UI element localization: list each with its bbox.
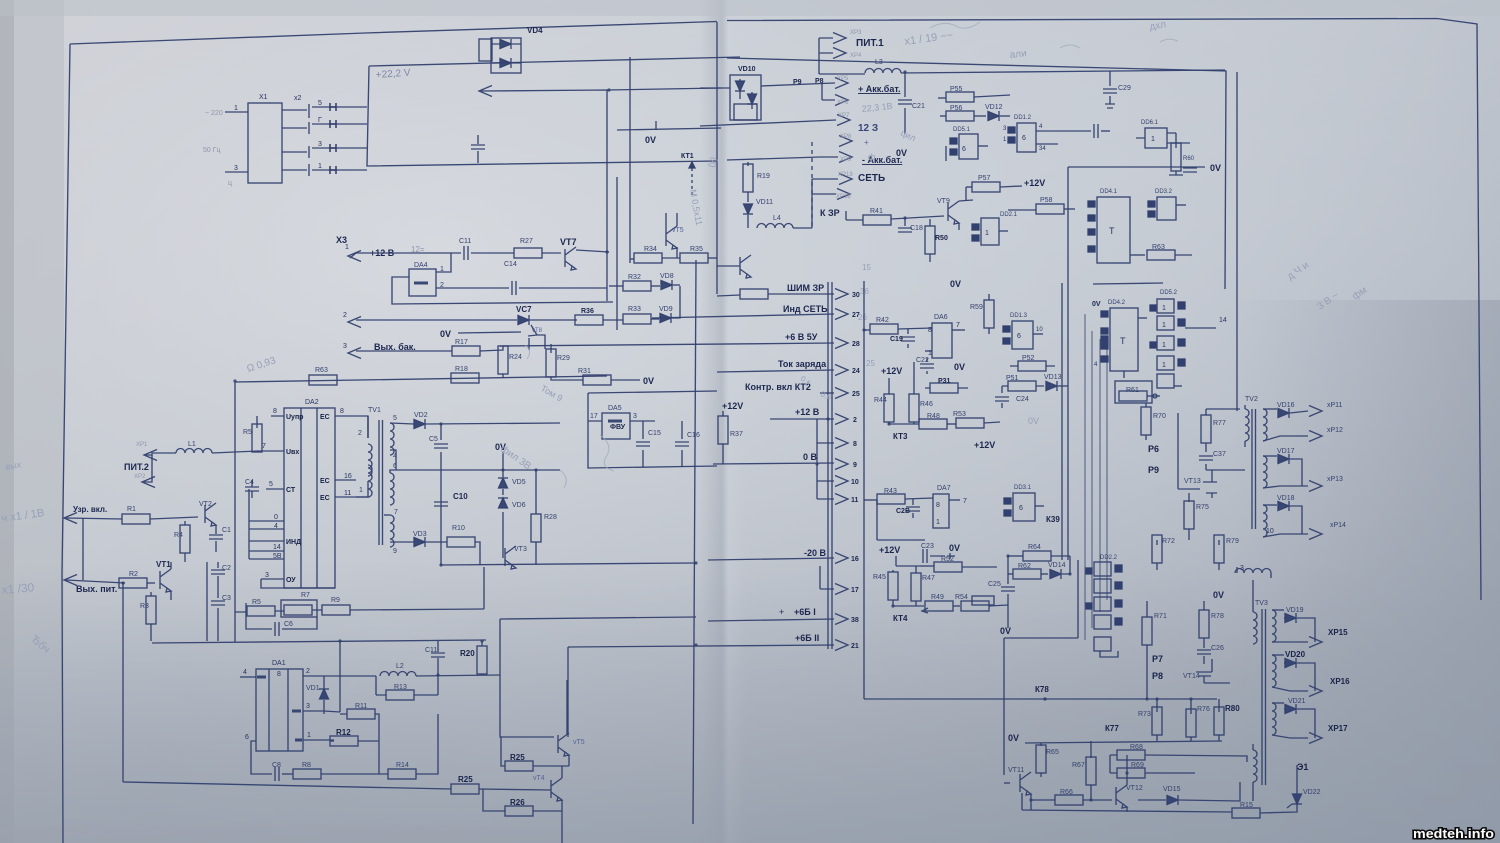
svg-text:Т: Т bbox=[1120, 336, 1126, 346]
svg-text:1: 1 bbox=[1162, 305, 1166, 312]
svg-text:хР12: хР12 bbox=[1327, 427, 1343, 434]
svg-text:R65: R65 bbox=[1046, 749, 1059, 756]
svg-text:L2: L2 bbox=[396, 663, 404, 670]
svg-text:Вых. пит.: Вых. пит. bbox=[76, 584, 117, 594]
svg-text:+12V: +12V bbox=[722, 401, 743, 411]
svg-text:R52: R52 bbox=[941, 556, 954, 563]
svg-text:R10: R10 bbox=[452, 525, 465, 532]
svg-text:R44: R44 bbox=[874, 397, 887, 404]
svg-text:ХР9: ХР9 bbox=[840, 157, 852, 163]
svg-text:ПИТ.2: ПИТ.2 bbox=[124, 462, 149, 472]
svg-text:R32: R32 bbox=[628, 274, 641, 281]
svg-text:ХР18: ХР18 bbox=[836, 194, 851, 200]
svg-text:R67: R67 bbox=[1072, 762, 1085, 769]
svg-text:0: 0 bbox=[274, 514, 278, 521]
svg-text:С2В: С2В bbox=[896, 508, 910, 515]
svg-text:КТ1: КТ1 bbox=[681, 153, 694, 160]
svg-text:ПИТ.1: ПИТ.1 bbox=[856, 38, 884, 49]
svg-text:R5: R5 bbox=[252, 599, 261, 606]
svg-text:12 З: 12 З bbox=[858, 123, 878, 134]
svg-text:6: 6 bbox=[962, 146, 966, 153]
svg-text:ХР4: ХР4 bbox=[850, 53, 862, 59]
svg-text:R47: R47 bbox=[922, 575, 935, 582]
svg-text:Р8: Р8 bbox=[1152, 671, 1163, 681]
svg-text:R18: R18 bbox=[455, 366, 468, 373]
svg-text:С29: С29 bbox=[1118, 85, 1131, 92]
svg-text:11: 11 bbox=[851, 497, 859, 504]
svg-text:Р51: Р51 bbox=[1006, 375, 1019, 382]
svg-text:VD17: VD17 bbox=[1277, 448, 1295, 455]
svg-text:R78: R78 bbox=[1211, 613, 1224, 620]
svg-text:6: 6 bbox=[1019, 505, 1023, 512]
svg-text:R73: R73 bbox=[1138, 711, 1151, 718]
svg-text:R11: R11 bbox=[355, 703, 367, 710]
svg-text:R66: R66 bbox=[1060, 789, 1073, 796]
svg-text:R2: R2 bbox=[129, 571, 138, 578]
svg-text:VD2: VD2 bbox=[414, 412, 428, 419]
svg-text:хР13: хР13 bbox=[1327, 476, 1343, 483]
svg-text:Контр. вкл КТ2: Контр. вкл КТ2 bbox=[745, 382, 811, 392]
svg-text:СТ: СТ bbox=[286, 487, 296, 494]
svg-text:VD19: VD19 bbox=[1286, 607, 1304, 614]
svg-text:0V: 0V bbox=[1213, 590, 1224, 600]
svg-text:R24: R24 bbox=[509, 354, 522, 361]
svg-text:2: 2 bbox=[853, 417, 857, 424]
svg-text:VТ1: VТ1 bbox=[156, 560, 171, 569]
svg-text:DA2: DA2 bbox=[305, 399, 319, 406]
svg-text:Uвх: Uвх bbox=[286, 449, 299, 456]
svg-text:R35: R35 bbox=[690, 246, 703, 253]
svg-text:6: 6 bbox=[1022, 135, 1026, 142]
svg-text:0V: 0V bbox=[645, 135, 656, 145]
svg-text:С11: С11 bbox=[425, 647, 437, 654]
svg-text:ХР19: ХР19 bbox=[838, 172, 853, 178]
svg-text:R3: R3 bbox=[140, 603, 149, 610]
svg-text:R26: R26 bbox=[510, 798, 525, 807]
svg-text:9: 9 bbox=[393, 548, 397, 555]
svg-text:DA4: DA4 bbox=[414, 262, 428, 269]
svg-text:ТV3: ТV3 bbox=[1255, 600, 1268, 607]
svg-text:КТ4: КТ4 bbox=[893, 614, 908, 623]
svg-text:1: 1 bbox=[985, 230, 989, 237]
svg-text:1: 1 bbox=[359, 487, 363, 494]
svg-text:VТ14: VТ14 bbox=[1183, 673, 1200, 680]
svg-text:DD4.1: DD4.1 bbox=[1100, 189, 1118, 195]
svg-text:0V: 0V bbox=[1000, 626, 1011, 636]
svg-text:С15: С15 bbox=[648, 430, 661, 437]
svg-text:R41: R41 bbox=[870, 208, 883, 215]
svg-text:R76: R76 bbox=[1197, 706, 1210, 713]
svg-text:С26: С26 bbox=[1211, 645, 1224, 652]
svg-text:R13: R13 bbox=[394, 684, 407, 691]
svg-text:Р31: Р31 bbox=[938, 378, 951, 385]
svg-text:ЕС: ЕС bbox=[320, 478, 330, 485]
svg-text:R20: R20 bbox=[460, 649, 475, 658]
svg-text:4: 4 bbox=[243, 669, 247, 676]
svg-text:VТ3: VТ3 bbox=[514, 546, 527, 553]
svg-text:5В: 5В bbox=[273, 553, 282, 560]
svg-text:17: 17 bbox=[851, 587, 859, 594]
svg-text:ц: ц bbox=[228, 180, 232, 187]
svg-text:R19: R19 bbox=[757, 173, 770, 180]
svg-text:Р9: Р9 bbox=[1148, 465, 1159, 475]
svg-text:1: 1 bbox=[1151, 136, 1155, 143]
svg-text:0V: 0V bbox=[1028, 416, 1039, 426]
svg-text:medteh.info: medteh.info bbox=[1413, 826, 1494, 841]
svg-text:VТ7: VТ7 bbox=[560, 237, 577, 247]
svg-text:VD8: VD8 bbox=[660, 273, 674, 280]
svg-text:VD5: VD5 bbox=[512, 479, 526, 486]
svg-text:VD14: VD14 bbox=[1048, 562, 1066, 569]
svg-text:2: 2 bbox=[306, 668, 310, 675]
svg-text:1: 1 bbox=[318, 163, 322, 170]
svg-text:VD1: VD1 bbox=[306, 685, 320, 692]
svg-text:VD18: VD18 bbox=[1277, 495, 1295, 502]
svg-text:ХР17: ХР17 bbox=[1328, 724, 1348, 733]
svg-text:R14: R14 bbox=[396, 762, 409, 769]
svg-text:R4: R4 bbox=[174, 532, 183, 539]
svg-text:R42: R42 bbox=[876, 317, 889, 324]
svg-text:R62: R62 bbox=[1018, 563, 1031, 570]
svg-text:30: 30 bbox=[852, 292, 860, 299]
svg-text:ХР15: ХР15 bbox=[1328, 628, 1348, 637]
svg-text:16: 16 bbox=[851, 556, 859, 563]
svg-text:DD2.1: DD2.1 bbox=[1000, 212, 1018, 218]
svg-text:28: 28 bbox=[852, 341, 860, 348]
svg-text:Т: Т bbox=[1109, 226, 1115, 236]
svg-text:3: 3 bbox=[318, 141, 322, 148]
svg-text:1: 1 bbox=[928, 350, 932, 357]
svg-text:Р52: Р52 bbox=[1022, 355, 1035, 362]
svg-text:R63: R63 bbox=[315, 367, 328, 374]
svg-text:ШИМ ЗР: ШИМ ЗР bbox=[787, 283, 824, 293]
svg-text:С5: С5 bbox=[429, 436, 438, 443]
svg-text:1: 1 bbox=[1162, 362, 1166, 369]
svg-text:VD3: VD3 bbox=[413, 531, 427, 538]
svg-text:DA5: DA5 bbox=[608, 405, 622, 412]
svg-text:1: 1 bbox=[936, 519, 940, 526]
svg-text:Uупр: Uупр bbox=[286, 414, 303, 421]
svg-text:26: 26 bbox=[858, 313, 867, 322]
svg-text:R50: R50 bbox=[935, 235, 948, 242]
svg-text:ХР2: ХР2 bbox=[134, 474, 146, 480]
svg-text:8: 8 bbox=[273, 408, 277, 415]
svg-text:VD12: VD12 bbox=[985, 104, 1003, 111]
svg-text:0V: 0V bbox=[643, 376, 654, 386]
svg-text:R25: R25 bbox=[458, 775, 473, 784]
svg-text:R29: R29 bbox=[557, 355, 570, 362]
svg-text:VD9: VD9 bbox=[659, 306, 673, 313]
svg-text:~ 220: ~ 220 bbox=[205, 110, 223, 117]
svg-text:7: 7 bbox=[262, 443, 266, 450]
svg-text:8: 8 bbox=[928, 327, 932, 334]
svg-text:DD3.1: DD3.1 bbox=[1014, 485, 1032, 491]
svg-text:ОУ: ОУ bbox=[286, 577, 296, 584]
svg-text:DD5.1: DD5.1 bbox=[953, 127, 971, 133]
svg-text:R63: R63 bbox=[1152, 244, 1165, 251]
svg-text:15: 15 bbox=[862, 263, 871, 272]
svg-text:0V: 0V bbox=[896, 148, 907, 158]
svg-text:25: 25 bbox=[852, 391, 860, 398]
svg-text:3: 3 bbox=[1240, 565, 1244, 572]
svg-text:1: 1 bbox=[1162, 322, 1166, 329]
svg-text:R37: R37 bbox=[730, 431, 743, 438]
svg-text:R12: R12 bbox=[336, 728, 351, 737]
svg-text:7: 7 bbox=[394, 509, 398, 516]
svg-text:Р58: Р58 bbox=[1040, 197, 1053, 204]
svg-text:R15: R15 bbox=[1240, 802, 1253, 809]
svg-text:R25: R25 bbox=[510, 753, 525, 762]
svg-text:+12V: +12V bbox=[974, 440, 995, 450]
svg-text:9: 9 bbox=[853, 462, 857, 469]
svg-text:3: 3 bbox=[343, 343, 347, 350]
svg-text:0V: 0V bbox=[954, 362, 965, 372]
svg-text:+ Акк.бат.: + Акк.бат. bbox=[858, 84, 900, 94]
svg-text:VD20: VD20 bbox=[1285, 650, 1306, 659]
svg-text:L3: L3 bbox=[875, 59, 883, 66]
svg-text:2: 2 bbox=[440, 282, 444, 289]
svg-text:Г: Г bbox=[318, 117, 322, 124]
svg-text:R17: R17 bbox=[455, 339, 468, 346]
svg-text:К39: К39 bbox=[1046, 515, 1060, 524]
svg-text:L4: L4 bbox=[773, 215, 781, 222]
svg-text:7: 7 bbox=[963, 498, 967, 505]
svg-text:R54: R54 bbox=[955, 594, 968, 601]
svg-text:х2: х2 bbox=[294, 95, 302, 102]
svg-text:С23: С23 bbox=[921, 543, 934, 550]
svg-text:R69: R69 bbox=[1131, 762, 1144, 769]
svg-text:Х3: Х3 bbox=[336, 235, 347, 245]
svg-text:R53: R53 bbox=[953, 411, 966, 418]
svg-text:vТ5: vТ5 bbox=[573, 739, 585, 746]
svg-text:10: 10 bbox=[1266, 528, 1274, 535]
svg-text:Р55: Р55 bbox=[950, 86, 963, 93]
svg-text:С2: С2 bbox=[222, 565, 231, 572]
svg-text:DD1.3: DD1.3 bbox=[1010, 313, 1028, 319]
svg-text:ИНД: ИНД bbox=[286, 539, 301, 546]
svg-text:VТ11: VТ11 bbox=[1008, 767, 1024, 774]
svg-text:DD6.1: DD6.1 bbox=[1141, 120, 1159, 126]
svg-text:R5: R5 bbox=[243, 429, 252, 436]
svg-text:11: 11 bbox=[344, 490, 351, 497]
svg-text:24: 24 bbox=[852, 368, 860, 375]
svg-text:VD16: VD16 bbox=[1277, 402, 1295, 409]
svg-text:VТ12: VТ12 bbox=[1126, 785, 1143, 792]
svg-text:R80: R80 bbox=[1225, 704, 1240, 713]
svg-text:+12V: +12V bbox=[881, 366, 902, 376]
svg-text:3: 3 bbox=[306, 703, 310, 710]
svg-text:КТ3: КТ3 bbox=[893, 432, 908, 441]
svg-text:R28: R28 bbox=[544, 514, 557, 521]
svg-text:0V: 0V bbox=[1092, 301, 1101, 308]
svg-text:С3: С3 bbox=[222, 595, 231, 602]
svg-text:VD6: VD6 bbox=[512, 502, 526, 509]
svg-text:Р8: Р8 bbox=[815, 78, 824, 85]
svg-text:VТ13: VТ13 bbox=[1184, 478, 1201, 485]
svg-text:0V: 0V bbox=[1008, 733, 1019, 743]
svg-text:К77: К77 bbox=[1105, 724, 1119, 733]
svg-text:0V: 0V bbox=[950, 279, 961, 289]
svg-text:х1 /30: х1 /30 bbox=[1, 580, 35, 597]
svg-text:С4: С4 bbox=[245, 479, 254, 486]
svg-text:R75: R75 bbox=[1196, 504, 1209, 511]
svg-text:5: 5 bbox=[269, 481, 273, 488]
svg-text:R61: R61 bbox=[1126, 387, 1139, 394]
svg-text:С21: С21 bbox=[912, 103, 925, 110]
svg-text:25: 25 bbox=[866, 359, 875, 368]
svg-text:DD4.2: DD4.2 bbox=[1108, 300, 1126, 306]
svg-text:R45: R45 bbox=[873, 574, 886, 581]
svg-text:Р7: Р7 bbox=[1152, 654, 1163, 664]
svg-text:ХР7: ХР7 bbox=[838, 113, 850, 119]
svg-text:К ЗР: К ЗР bbox=[820, 208, 840, 218]
svg-text:DA7: DA7 bbox=[937, 485, 951, 492]
svg-text:50 Гц: 50 Гц bbox=[203, 147, 221, 154]
svg-text:VD10: VD10 bbox=[738, 66, 756, 73]
svg-text:VD11: VD11 bbox=[756, 199, 773, 206]
svg-text:С11: С11 bbox=[459, 238, 471, 245]
svg-text:0V: 0V bbox=[440, 329, 451, 339]
svg-text:хР14: хР14 bbox=[1330, 522, 1346, 529]
svg-text:38: 38 bbox=[851, 617, 859, 624]
svg-text:ХР16: ХР16 bbox=[1330, 677, 1350, 686]
svg-text:Р57: Р57 bbox=[978, 175, 991, 182]
svg-text:али: али bbox=[1009, 48, 1027, 61]
svg-text:VD22: VD22 bbox=[1303, 789, 1321, 796]
svg-text:R72: R72 bbox=[1162, 538, 1175, 545]
svg-text:0V: 0V bbox=[949, 543, 960, 553]
svg-text:ф: ф bbox=[868, 152, 876, 162]
svg-text:R33: R33 bbox=[628, 306, 641, 313]
svg-text:1: 1 bbox=[307, 732, 311, 739]
svg-text:DD2.2: DD2.2 bbox=[1100, 555, 1118, 561]
svg-text:ХР3: ХР3 bbox=[850, 30, 862, 36]
svg-text:X1: X1 bbox=[259, 94, 268, 101]
svg-text:R34: R34 bbox=[644, 246, 657, 253]
svg-text:ТV1: ТV1 bbox=[368, 407, 381, 414]
svg-text:5: 5 bbox=[318, 100, 322, 107]
svg-text:Ток заряда: Ток заряда bbox=[778, 359, 827, 369]
svg-text:ХР6: ХР6 bbox=[837, 100, 849, 106]
svg-text:14: 14 bbox=[273, 544, 281, 551]
svg-text:СЕТЬ: СЕТЬ bbox=[858, 173, 885, 184]
svg-text:R7: R7 bbox=[301, 592, 310, 599]
svg-text:С8: С8 bbox=[272, 762, 281, 769]
svg-text:0V: 0V bbox=[1210, 163, 1221, 173]
svg-text:0 В: 0 В bbox=[803, 452, 818, 462]
svg-text:+6 В 5У: +6 В 5У bbox=[785, 332, 818, 342]
svg-text:-20 В: -20 В bbox=[804, 548, 827, 558]
svg-text:Узр. вкл.: Узр. вкл. bbox=[73, 505, 107, 514]
svg-text:ТV2: ТV2 bbox=[1245, 396, 1258, 403]
svg-text:R43: R43 bbox=[884, 488, 897, 495]
svg-text:R36: R36 bbox=[581, 308, 594, 315]
svg-text:VD21: VD21 bbox=[1288, 698, 1306, 705]
svg-text:1: 1 bbox=[345, 244, 349, 251]
svg-text:R79: R79 bbox=[1226, 538, 1239, 545]
svg-text:6: 6 bbox=[245, 734, 249, 741]
svg-text:Инд СЕТЬ: Инд СЕТЬ bbox=[783, 304, 828, 314]
svg-text:21: 21 bbox=[851, 643, 859, 650]
svg-text:Р6: Р6 bbox=[1148, 444, 1159, 454]
svg-text:DA6: DA6 bbox=[934, 314, 948, 321]
svg-text:R71: R71 bbox=[1154, 613, 1167, 620]
svg-text:С18: С18 bbox=[910, 225, 923, 232]
svg-text:С16: С16 bbox=[687, 432, 700, 439]
svg-text:10: 10 bbox=[1036, 327, 1043, 333]
svg-text:ХР1: ХР1 bbox=[136, 442, 148, 448]
svg-text:VD4: VD4 bbox=[527, 26, 543, 35]
svg-text:Э1: Э1 bbox=[1297, 762, 1308, 772]
svg-text:+12V: +12V bbox=[1024, 178, 1045, 188]
svg-text:R1: R1 bbox=[127, 506, 136, 513]
svg-text:DD1.2: DD1.2 bbox=[1014, 115, 1032, 121]
svg-text:ФВУ: ФВУ bbox=[610, 424, 626, 431]
svg-text:VD13: VD13 bbox=[1044, 374, 1062, 381]
svg-text:К78: К78 bbox=[1035, 685, 1049, 694]
svg-text:1: 1 bbox=[234, 105, 238, 112]
svg-text:Р56: Р56 bbox=[950, 105, 963, 112]
svg-text:+12 В: +12 В bbox=[795, 407, 820, 417]
svg-text:R46: R46 bbox=[920, 401, 933, 408]
svg-text:R68: R68 bbox=[1130, 744, 1143, 751]
svg-text:vТ4: vТ4 bbox=[533, 775, 545, 782]
svg-text:R49: R49 bbox=[931, 594, 944, 601]
svg-text:С10: С10 bbox=[453, 492, 468, 501]
svg-text:3: 3 bbox=[633, 413, 637, 420]
svg-text:ЕС: ЕС bbox=[320, 414, 330, 421]
svg-text:5: 5 bbox=[393, 415, 397, 422]
svg-text:+: + bbox=[864, 138, 869, 147]
svg-text:6: 6 bbox=[1017, 333, 1021, 340]
svg-text:1: 1 bbox=[1162, 342, 1166, 349]
svg-text:С1: С1 bbox=[222, 527, 231, 534]
svg-text:С24: С24 bbox=[1016, 396, 1029, 403]
svg-text:R59: R59 bbox=[970, 304, 983, 311]
svg-text:С22: С22 bbox=[916, 357, 929, 364]
svg-text:14: 14 bbox=[1219, 317, 1227, 324]
svg-text:8: 8 bbox=[340, 408, 344, 415]
svg-text:С19: С19 bbox=[890, 336, 903, 343]
svg-text:16: 16 bbox=[344, 473, 352, 480]
svg-text:VТ9: VТ9 bbox=[937, 198, 950, 205]
svg-text:С14: С14 bbox=[504, 261, 517, 268]
svg-text:R48: R48 bbox=[927, 413, 940, 420]
svg-text:R77: R77 bbox=[1213, 420, 1226, 427]
svg-text:R9: R9 bbox=[331, 597, 340, 604]
svg-text:+12V: +12V bbox=[879, 545, 900, 555]
svg-text:С6: С6 bbox=[284, 621, 293, 628]
svg-text:6: 6 bbox=[393, 463, 397, 470]
svg-text:2: 2 bbox=[343, 312, 347, 319]
svg-text:R60: R60 bbox=[1183, 156, 1195, 162]
svg-text:ЕС: ЕС bbox=[320, 495, 330, 502]
svg-text:Р9: Р9 bbox=[793, 79, 802, 86]
svg-text:+6Б I: +6Б I bbox=[794, 607, 816, 617]
svg-text:34: 34 bbox=[1039, 146, 1046, 152]
svg-text:DA1: DA1 bbox=[272, 660, 286, 667]
svg-text:3: 3 bbox=[265, 572, 269, 579]
svg-text:VC7: VC7 bbox=[516, 305, 532, 314]
svg-text:8: 8 bbox=[277, 671, 281, 678]
svg-text:DD5.2: DD5.2 bbox=[1160, 290, 1178, 296]
svg-text:1: 1 bbox=[440, 266, 444, 273]
svg-text:3: 3 bbox=[234, 165, 238, 172]
svg-text:С25: С25 bbox=[988, 581, 1001, 588]
svg-text:8: 8 bbox=[853, 441, 857, 448]
svg-text:36: 36 bbox=[860, 287, 869, 296]
svg-text:2: 2 bbox=[358, 430, 362, 437]
